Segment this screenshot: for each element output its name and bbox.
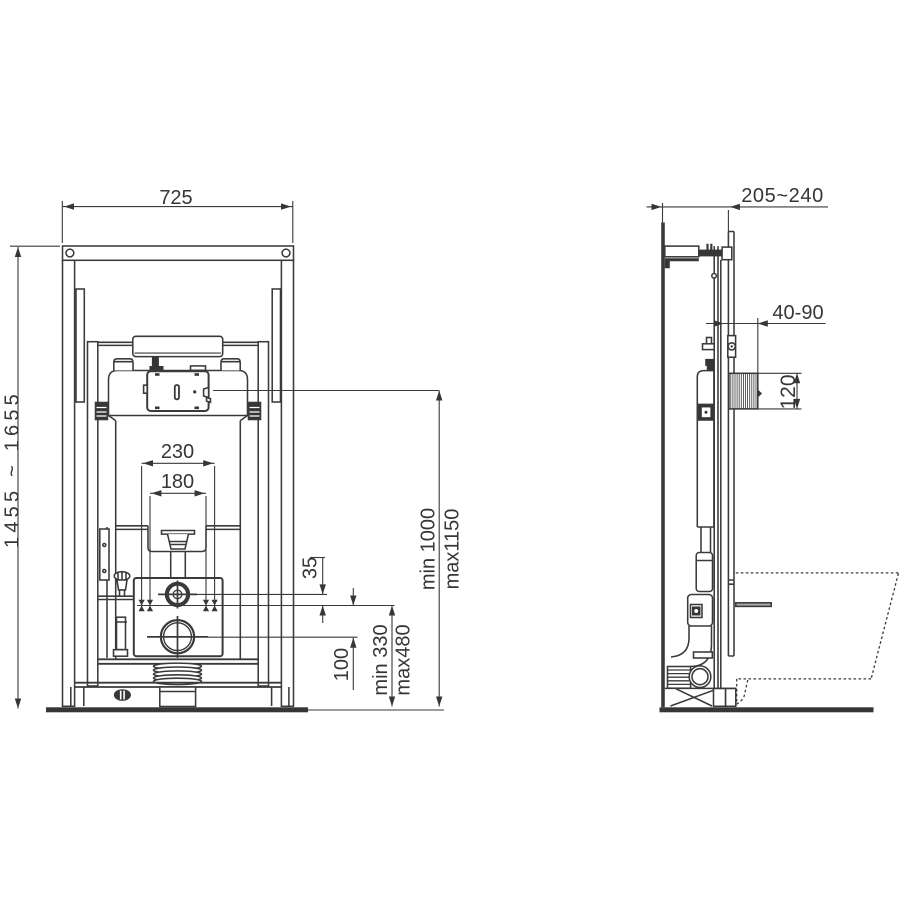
svg-text:230: 230 [161, 441, 194, 463]
svg-text:max480: max480 [393, 624, 415, 695]
svg-text:205~240: 205~240 [741, 185, 824, 207]
svg-text:min 330: min 330 [370, 624, 392, 695]
svg-text:725: 725 [159, 187, 192, 209]
svg-text:100: 100 [331, 648, 353, 681]
svg-text:120: 120 [777, 374, 800, 409]
svg-text:1455 ~ 1655: 1455 ~ 1655 [1, 390, 23, 548]
svg-text:max1150: max1150 [442, 509, 464, 590]
svg-text:180: 180 [161, 471, 194, 493]
svg-text:35: 35 [300, 557, 322, 579]
svg-text:40-90: 40-90 [772, 302, 823, 324]
svg-text:min 1000: min 1000 [418, 508, 440, 590]
